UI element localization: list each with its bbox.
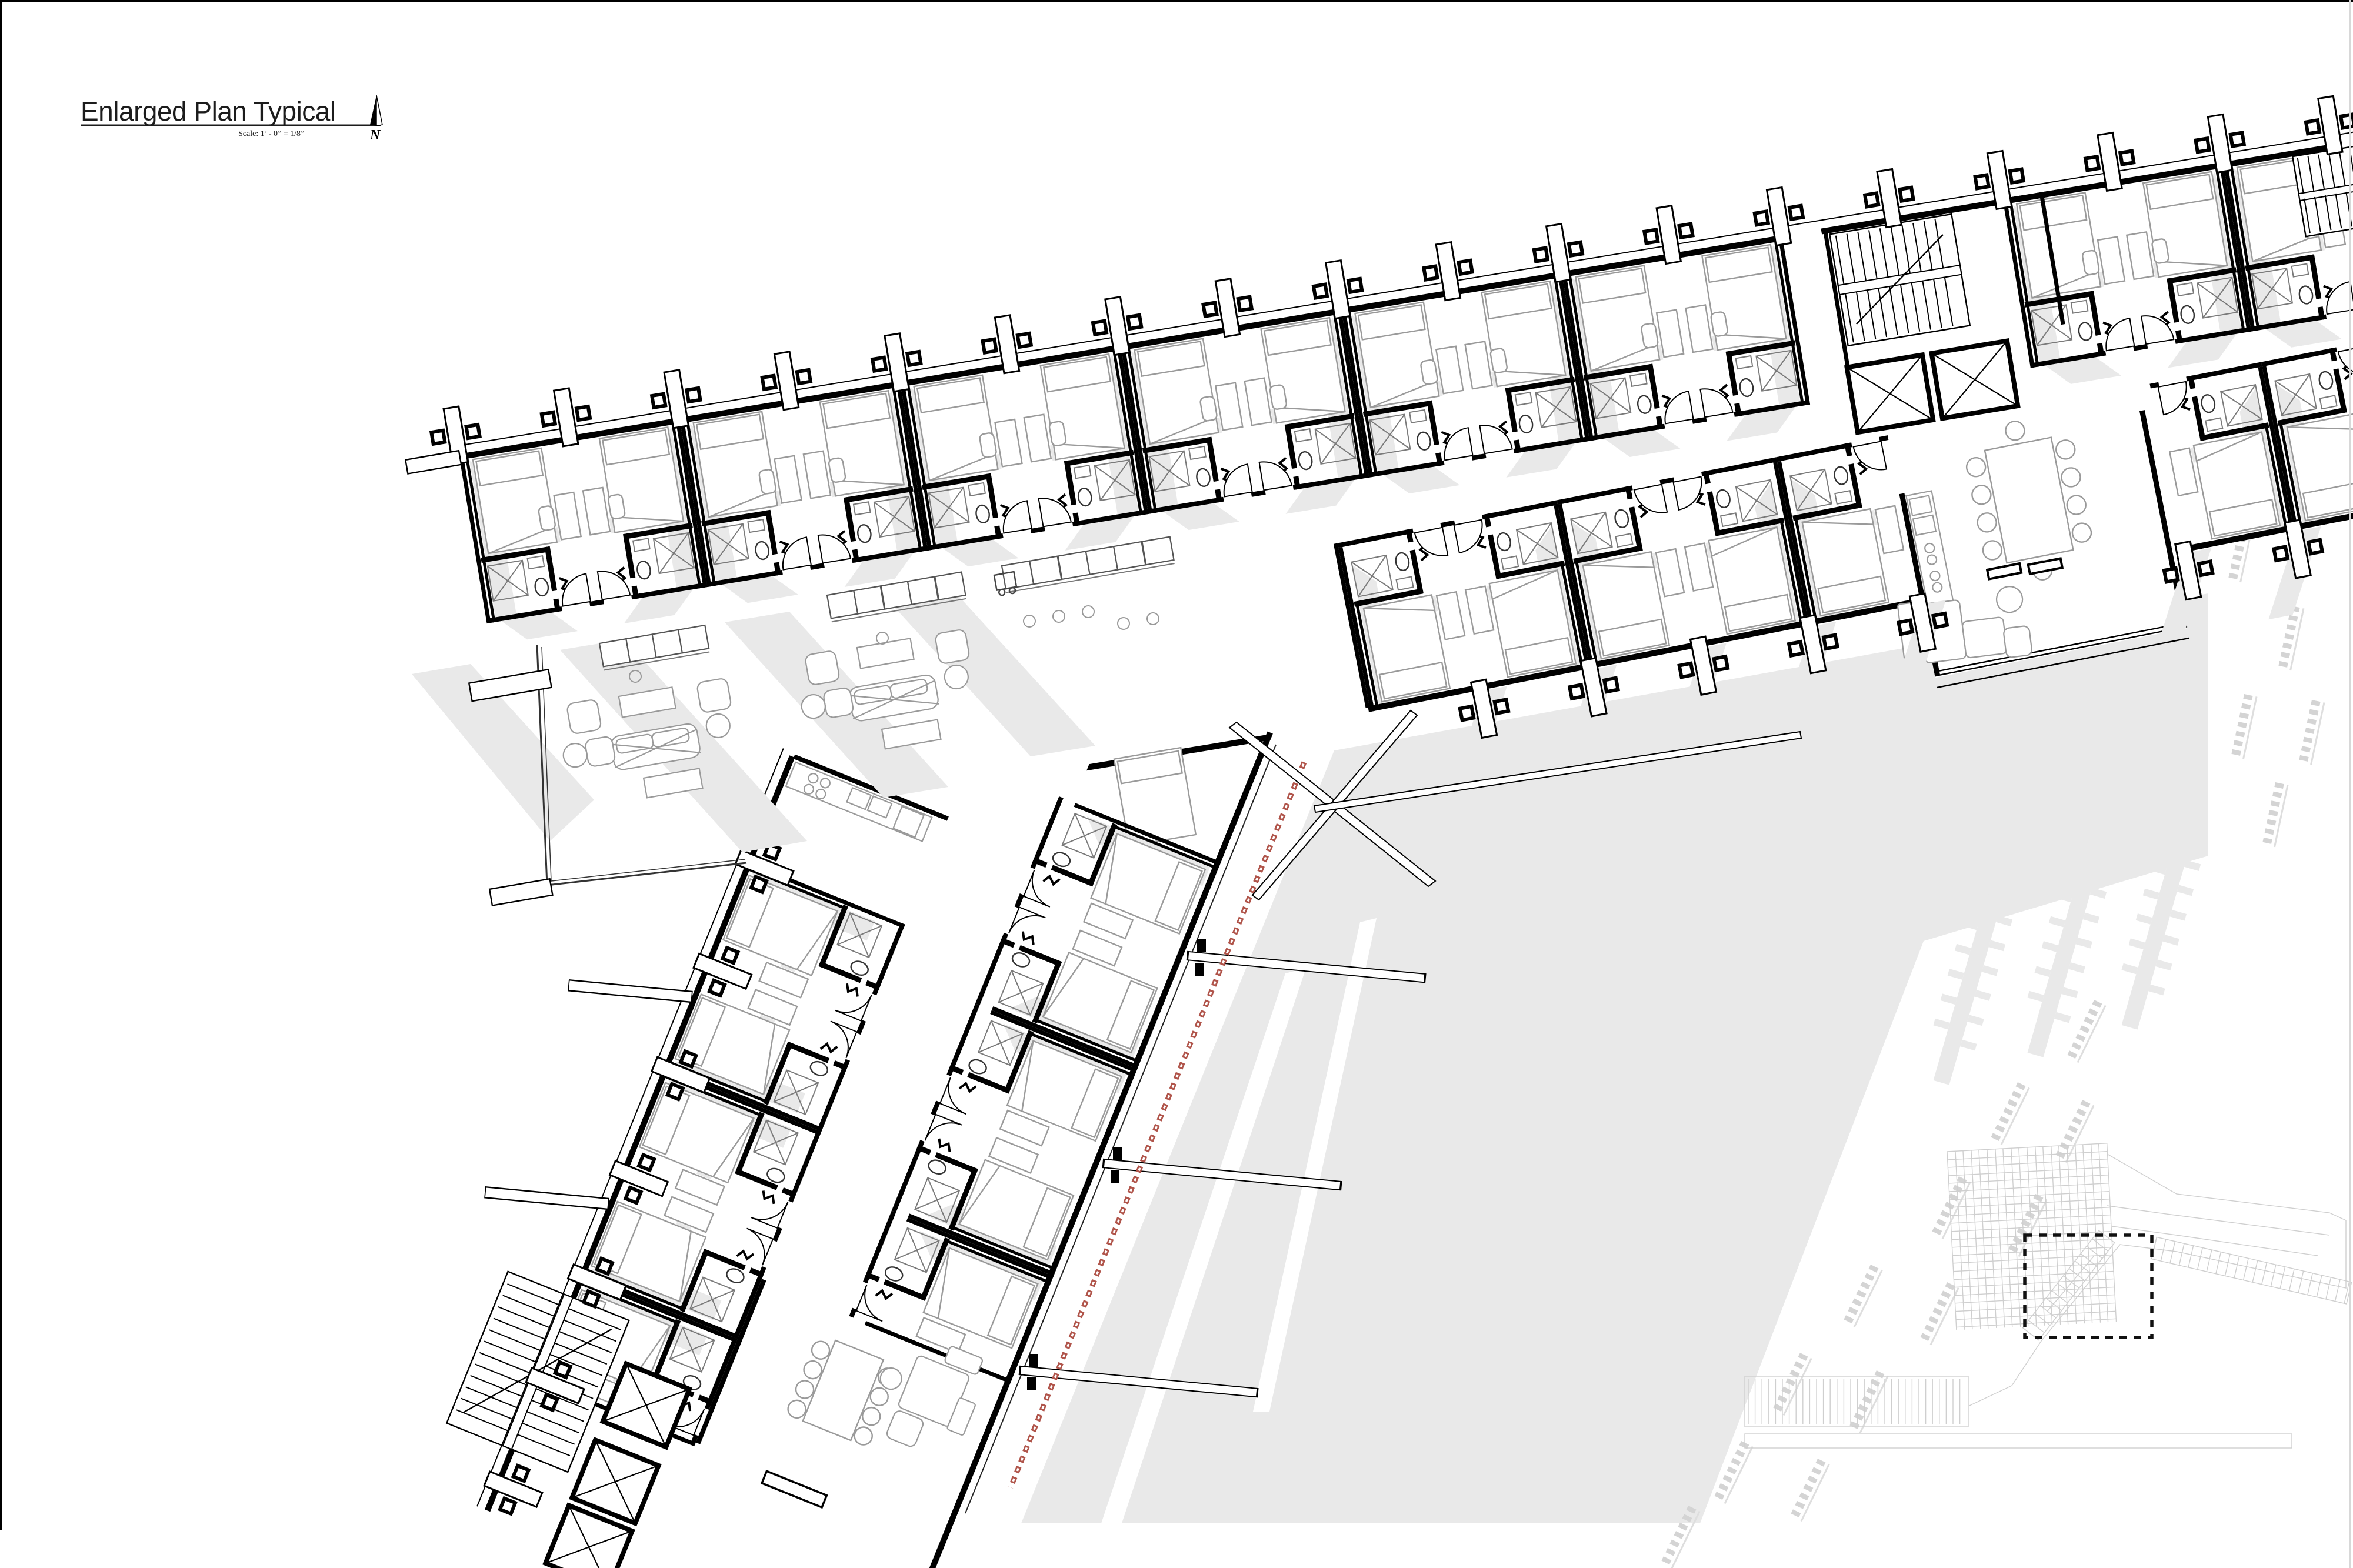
svg-text:N: N — [369, 128, 381, 143]
svg-text:Enlarged Plan Typical: Enlarged Plan Typical — [81, 96, 336, 126]
svg-text:Scale: 1’ - 0” = 1/8”: Scale: 1’ - 0” = 1/8” — [238, 129, 304, 138]
